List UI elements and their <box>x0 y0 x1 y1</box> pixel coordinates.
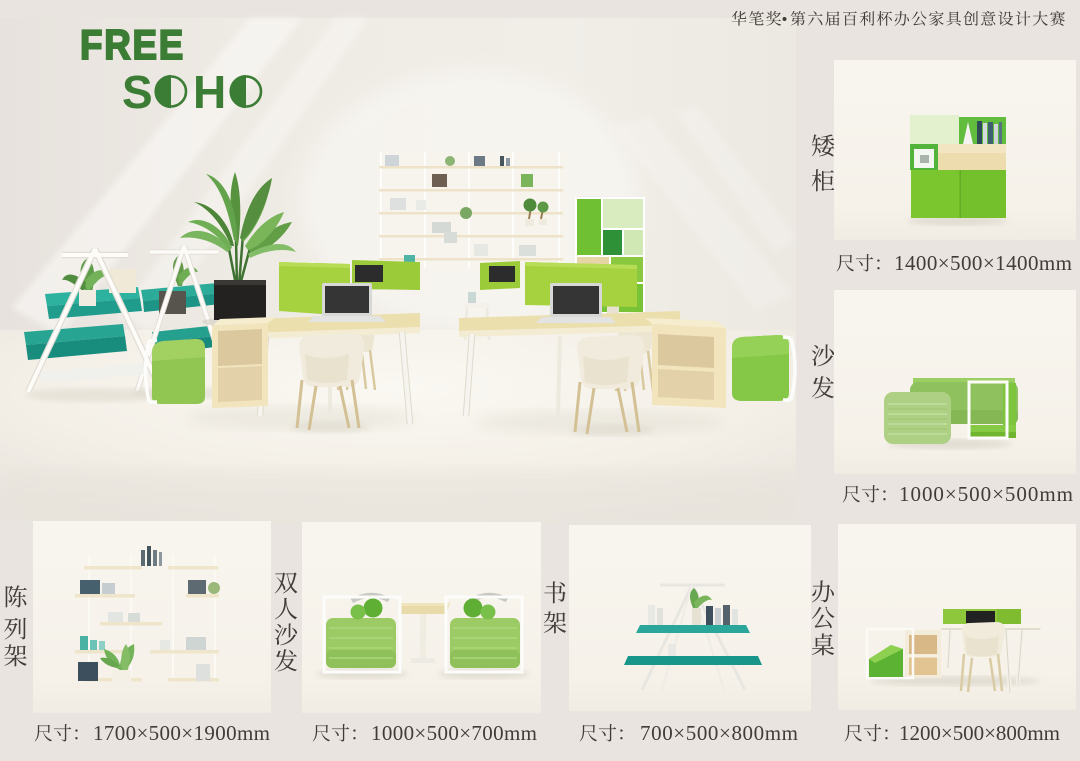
svg-text:1000×500×500mm: 1000×500×500mm <box>899 482 1073 506</box>
svg-text:1400×500×1400mm: 1400×500×1400mm <box>894 251 1072 275</box>
svg-text:S: S <box>122 66 153 118</box>
svg-text:1000×500×700mm: 1000×500×700mm <box>371 721 537 745</box>
svg-text:H: H <box>193 66 226 118</box>
svg-text:FREE: FREE <box>80 21 185 68</box>
svg-text:1700×500×1900mm: 1700×500×1900mm <box>93 721 270 745</box>
svg-text:1200×500×800mm: 1200×500×800mm <box>899 721 1060 745</box>
svg-text:700×500×800mm: 700×500×800mm <box>640 721 798 745</box>
